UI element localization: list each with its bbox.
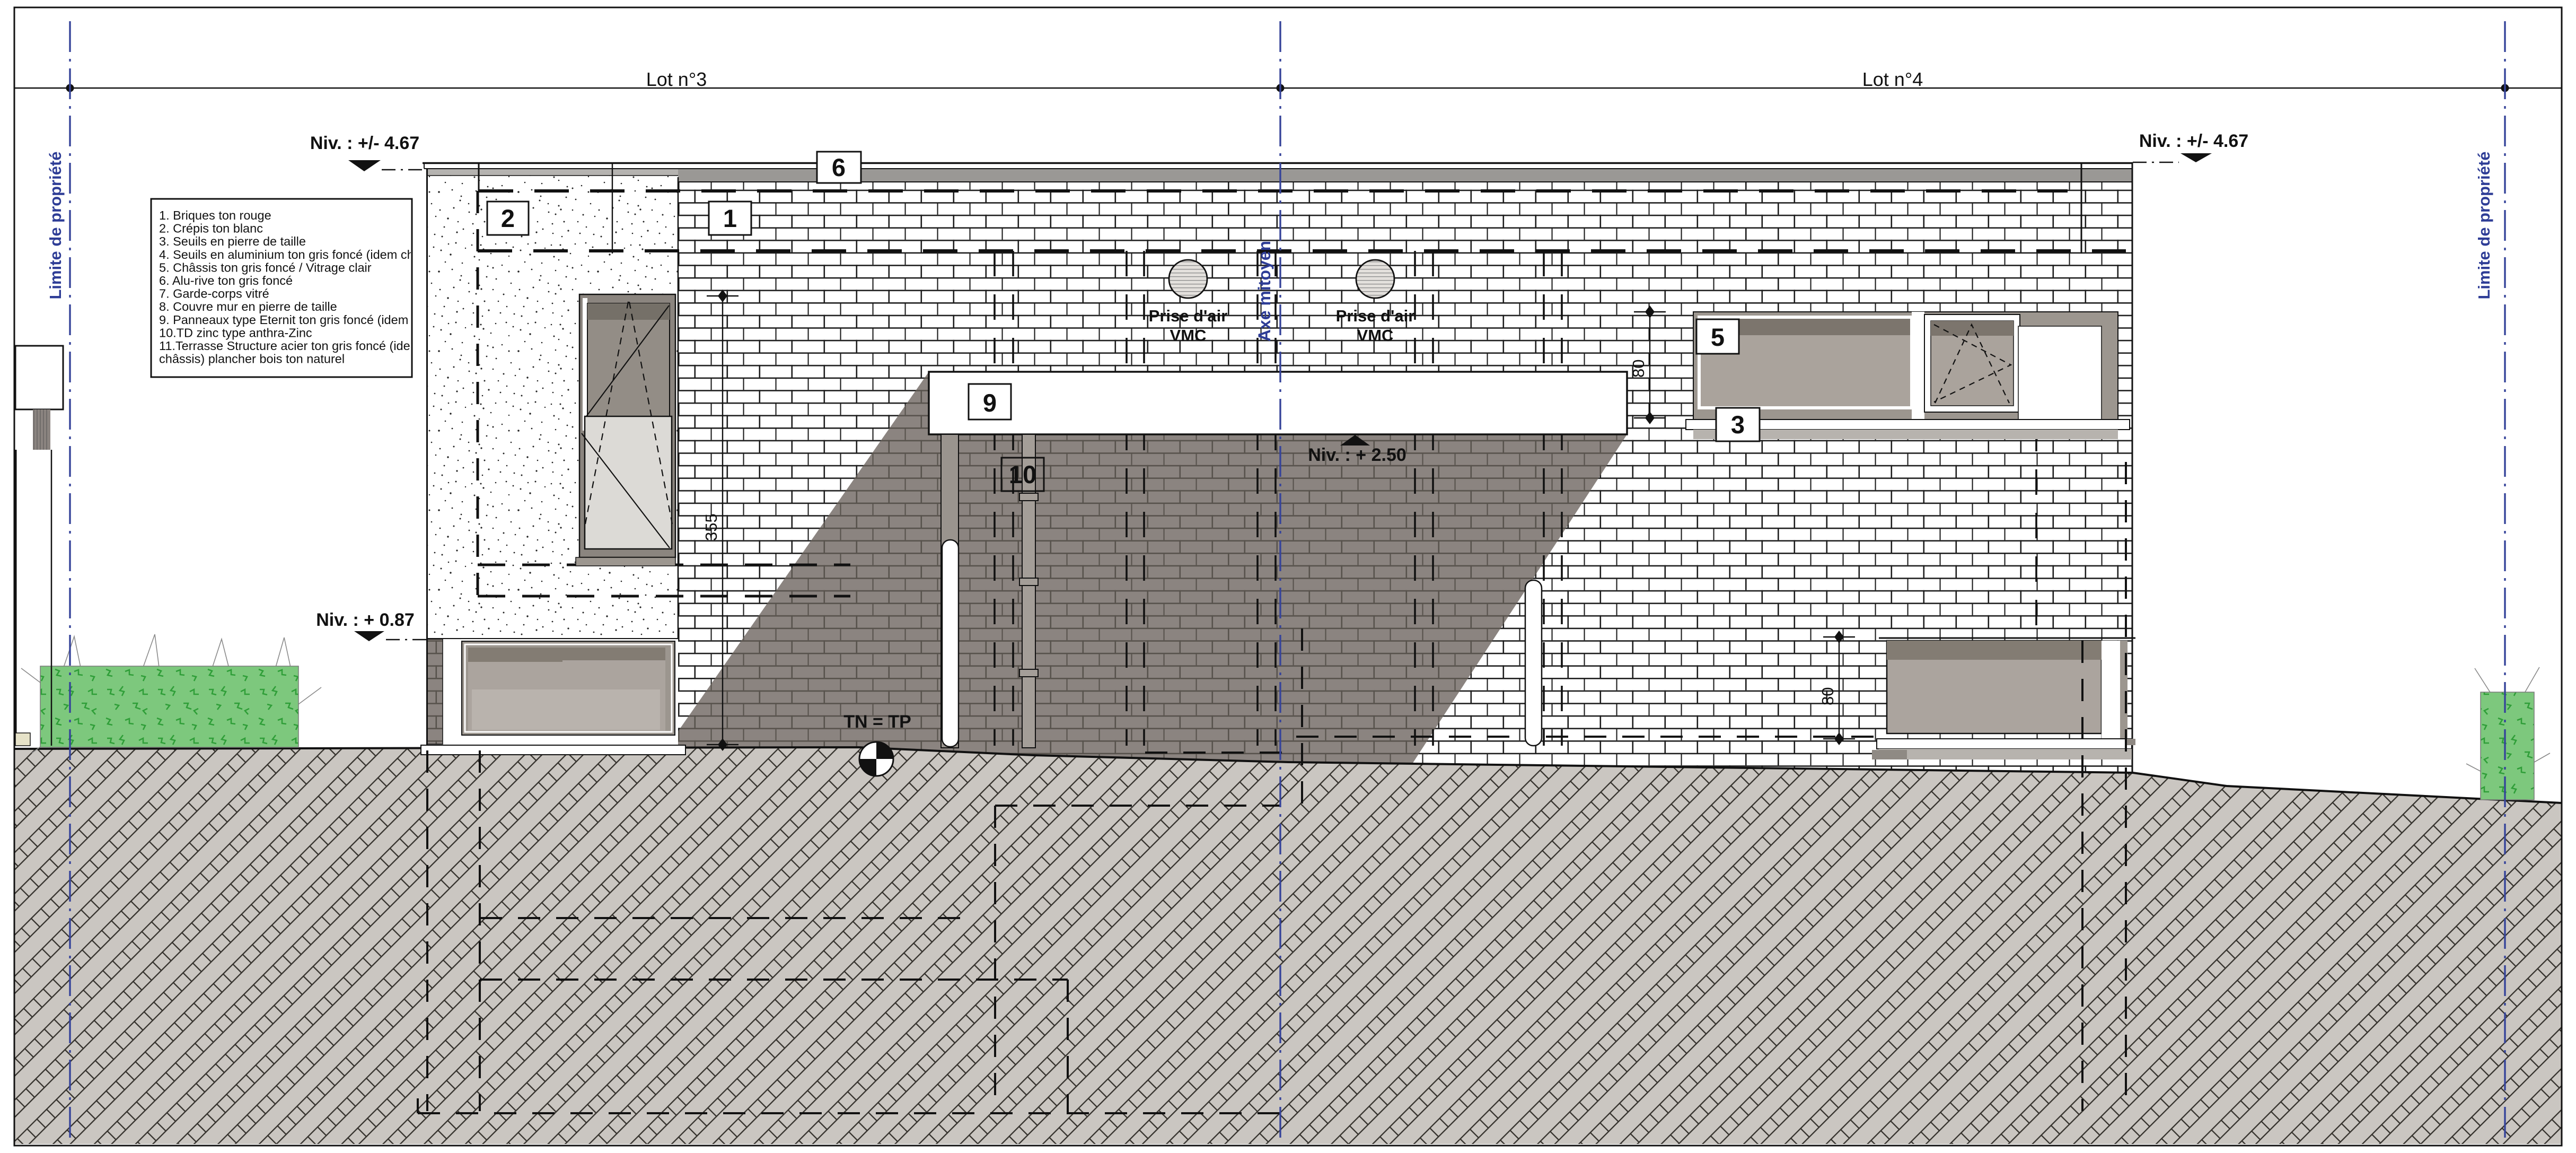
svg-text:Lot n°4: Lot n°4 <box>1862 68 1923 90</box>
svg-text:4. Seuils en aluminium ton gri: 4. Seuils en aluminium ton gris foncé (i… <box>159 248 442 261</box>
svg-text:11.Terrasse Structure acier to: 11.Terrasse Structure acier ton gris fon… <box>159 339 420 353</box>
svg-text:2. Crépis ton blanc: 2. Crépis ton blanc <box>159 222 263 235</box>
svg-text:7. Garde-corps vitré: 7. Garde-corps vitré <box>159 287 269 301</box>
svg-text:Niv. : +/- 4.67: Niv. : +/- 4.67 <box>310 133 419 153</box>
svg-text:6. Alu-rive ton gris foncé: 6. Alu-rive ton gris foncé <box>159 274 293 287</box>
svg-text:8. Couvre mur en pierre de tai: 8. Couvre mur en pierre de taille <box>159 300 337 313</box>
svg-text:3: 3 <box>1731 410 1745 439</box>
svg-text:355: 355 <box>702 513 720 541</box>
svg-text:Limite de propriété: Limite de propriété <box>2475 151 2493 299</box>
svg-text:10: 10 <box>1009 460 1036 488</box>
svg-text:VMC: VMC <box>1357 326 1394 345</box>
svg-text:3. Seuils en pierre de taille: 3. Seuils en pierre de taille <box>159 234 306 248</box>
svg-text:Niv. : + 0.87: Niv. : + 0.87 <box>316 610 415 630</box>
svg-text:Lot n°3: Lot n°3 <box>646 68 707 90</box>
svg-text:Axe mitoyen: Axe mitoyen <box>1255 241 1274 342</box>
svg-text:80: 80 <box>1818 687 1837 705</box>
svg-text:9. Panneaux type Eternit ton g: 9. Panneaux type Eternit ton gris foncé … <box>159 313 438 327</box>
svg-text:10.TD zinc type anthra-Zinc: 10.TD zinc type anthra-Zinc <box>159 326 312 339</box>
svg-text:châssis) plancher bois ton nat: châssis) plancher bois ton naturel <box>159 352 345 366</box>
svg-text:2: 2 <box>501 204 515 232</box>
svg-text:80: 80 <box>1629 360 1648 378</box>
svg-text:Niv. : +/- 4.67: Niv. : +/- 4.67 <box>2139 131 2248 151</box>
svg-text:TN = TP: TN = TP <box>843 712 911 732</box>
svg-text:5. Châssis ton gris foncé / Vi: 5. Châssis ton gris foncé / Vitrage clai… <box>159 260 372 274</box>
svg-text:1: 1 <box>723 204 737 232</box>
svg-text:6: 6 <box>832 153 846 181</box>
svg-text:VMC: VMC <box>1170 326 1207 345</box>
svg-text:Niv. : + 2.50: Niv. : + 2.50 <box>1308 445 1406 465</box>
svg-text:5: 5 <box>1711 323 1725 351</box>
svg-text:1. Briques ton rouge: 1. Briques ton rouge <box>159 208 271 222</box>
svg-text:Prise d'air: Prise d'air <box>1149 307 1228 325</box>
svg-text:9: 9 <box>983 389 997 417</box>
svg-text:Limite de propriété: Limite de propriété <box>46 151 65 299</box>
svg-text:Prise d'air: Prise d'air <box>1336 307 1415 325</box>
